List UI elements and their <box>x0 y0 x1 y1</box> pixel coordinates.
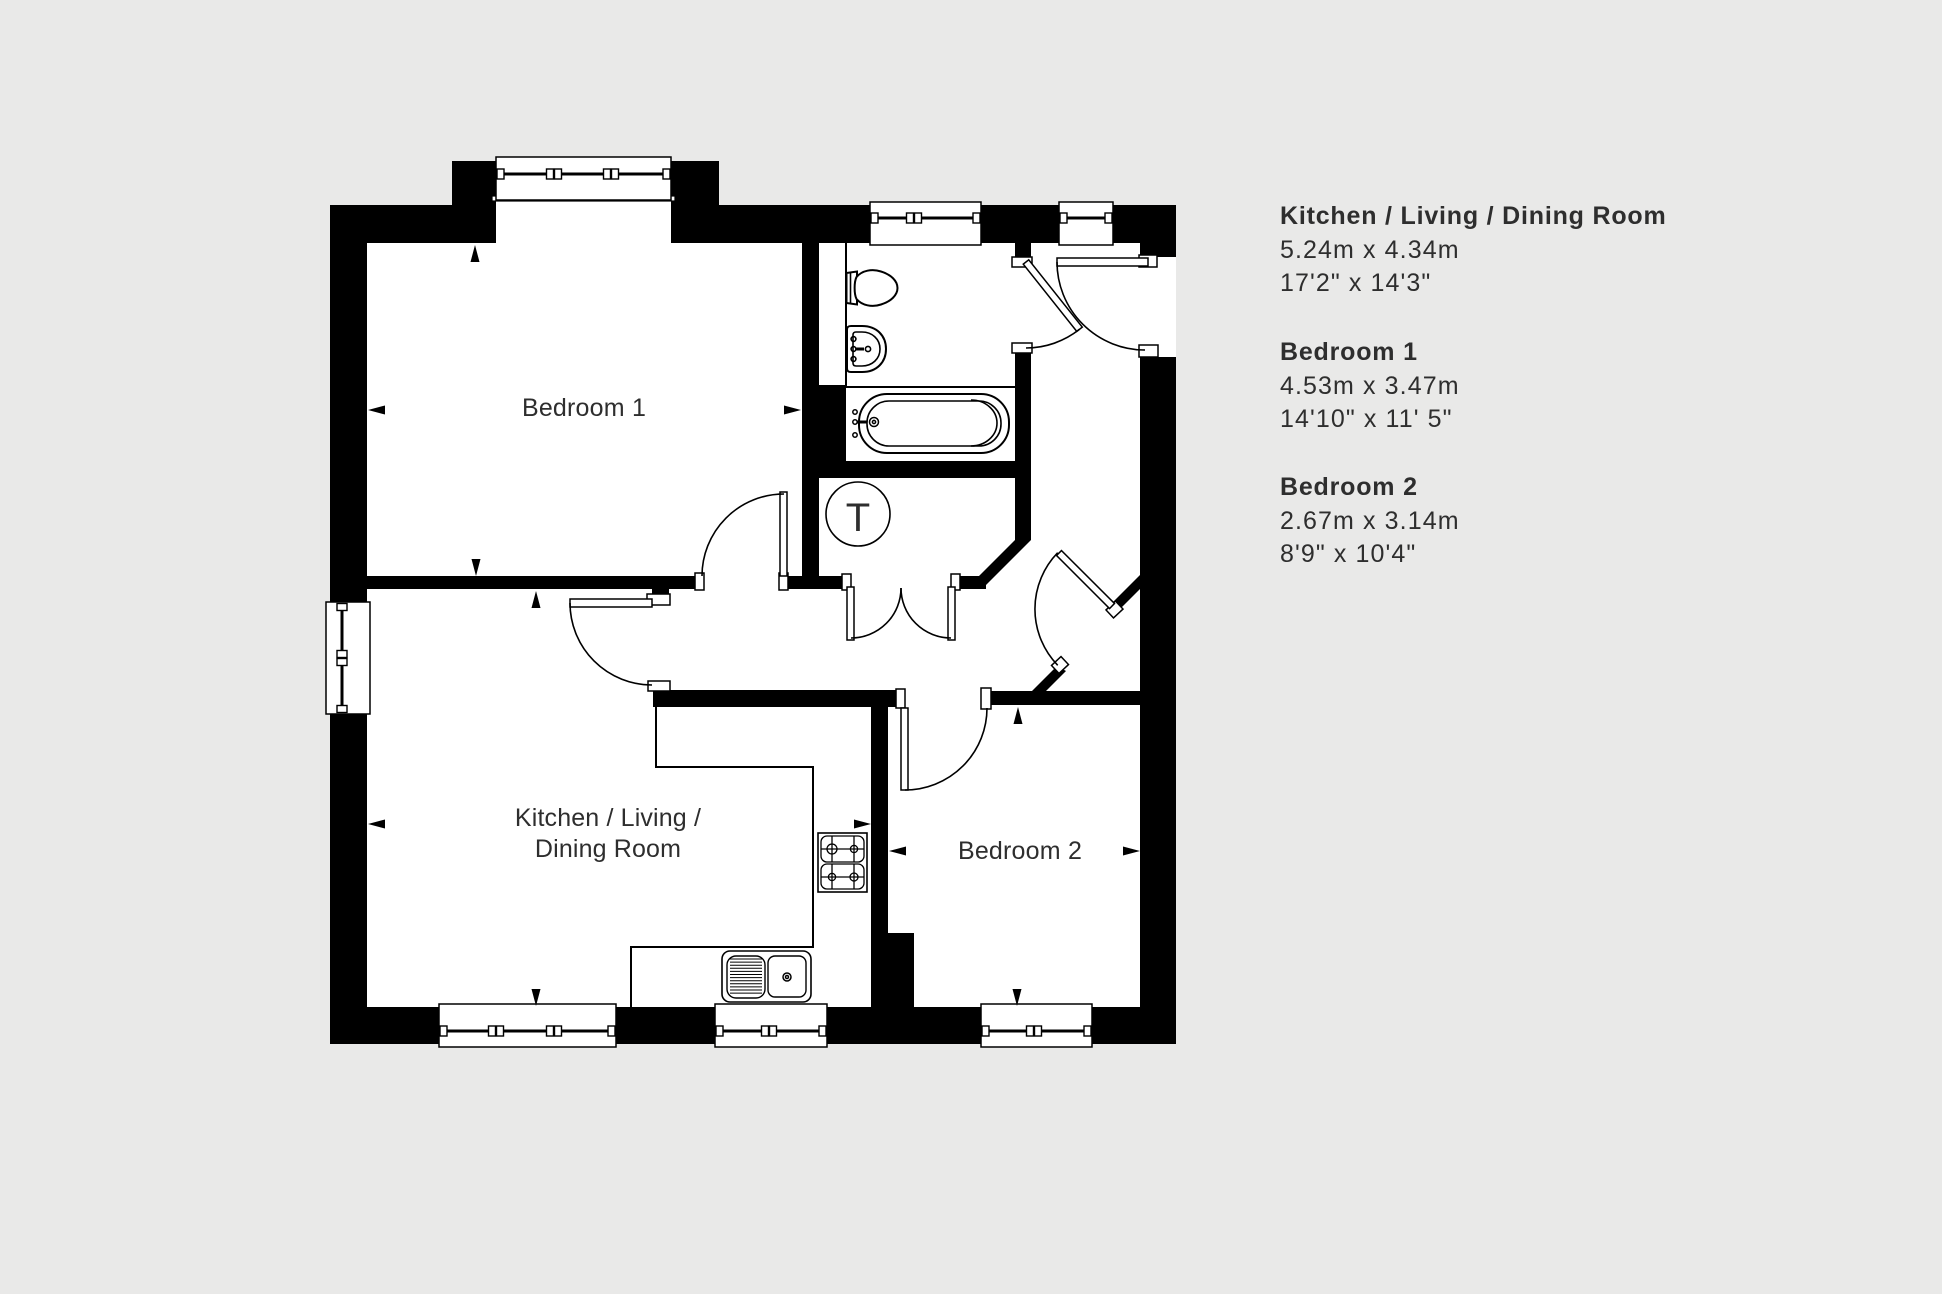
svg-text:5.24m x 4.34m: 5.24m x 4.34m <box>1280 236 1460 264</box>
svg-text:Bedroom 1: Bedroom 1 <box>522 394 646 422</box>
svg-text:4.53m x 3.47m: 4.53m x 3.47m <box>1280 372 1460 400</box>
svg-text:2.67m x 3.14m: 2.67m x 3.14m <box>1280 507 1460 535</box>
svg-text:14'10" x 11' 5": 14'10" x 11' 5" <box>1280 405 1453 433</box>
svg-text:8'9" x 10'4": 8'9" x 10'4" <box>1280 540 1416 568</box>
svg-text:Bedroom 2: Bedroom 2 <box>958 837 1082 865</box>
svg-text:Bedroom 2: Bedroom 2 <box>1280 473 1418 501</box>
svg-text:Kitchen / Living / Dining Room: Kitchen / Living / Dining Room <box>1280 202 1667 230</box>
svg-text:T: T <box>846 496 870 540</box>
svg-text:17'2" x 14'3": 17'2" x 14'3" <box>1280 269 1431 297</box>
svg-text:Kitchen / Living /: Kitchen / Living / <box>515 804 701 832</box>
svg-text:Bedroom 1: Bedroom 1 <box>1280 338 1418 366</box>
svg-text:Dining Room: Dining Room <box>535 835 681 863</box>
